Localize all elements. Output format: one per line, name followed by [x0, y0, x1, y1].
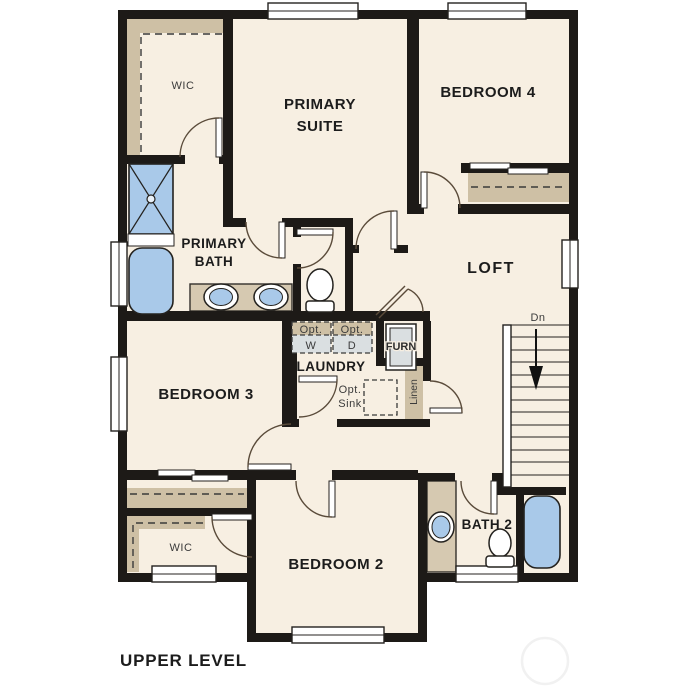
sink-opt-label: Sink [338, 398, 361, 410]
window [111, 357, 127, 431]
washer-opt-label: W [306, 340, 317, 352]
wic-upper-shelf-top [127, 19, 223, 33]
wic-lower-label: WIC [170, 542, 193, 554]
shower-primary [128, 164, 174, 246]
stair-stringer [503, 325, 511, 487]
bedroom4-closet-door [508, 168, 548, 174]
bedroom3-closet-door [158, 470, 195, 476]
primary-suite-label: SUITE [297, 118, 344, 135]
window [448, 3, 526, 19]
floor-plan-page: WIC PRIMARY SUITE BEDROOM 4 PRIMARY BATH… [0, 0, 687, 687]
primary-bath-label: PRIMARY [181, 236, 246, 251]
shower-drain-icon [147, 195, 155, 203]
watermark-circle [522, 638, 568, 684]
laundry-label: LAUNDRY [297, 359, 366, 374]
dryer-opt-label: D [348, 340, 356, 352]
toilet-primary [306, 269, 334, 312]
window [456, 566, 518, 582]
bedroom4-label: BEDROOM 4 [440, 84, 536, 101]
washer-opt-label: Opt. [300, 324, 323, 336]
floor-plan-canvas: WIC PRIMARY SUITE BEDROOM 4 PRIMARY BATH… [0, 0, 687, 687]
shower-curb [128, 234, 174, 246]
wic-upper-shelf-left [127, 19, 140, 155]
vanity-sink-bath2 [428, 512, 454, 542]
primary-suite-label: PRIMARY [284, 96, 356, 113]
furnace-label: FURN [386, 341, 417, 353]
bathtub-bath2 [524, 496, 560, 568]
bedroom3-closet-door [192, 475, 228, 481]
bath2-label: BATH 2 [462, 517, 513, 532]
primary-bath-label: BATH [195, 254, 234, 269]
loft-label: LOFT [467, 260, 515, 277]
window [562, 240, 578, 288]
dryer-opt-label: Opt. [341, 324, 364, 336]
page-title: UPPER LEVEL [120, 651, 247, 670]
sink-opt-label: Opt. [339, 384, 362, 396]
bedroom2-label: BEDROOM 2 [288, 556, 383, 573]
bathtub-primary [129, 248, 173, 314]
bedroom3-label: BEDROOM 3 [158, 386, 253, 403]
linen-label: Linen [408, 379, 420, 405]
window [292, 627, 384, 643]
window [152, 566, 216, 582]
stairs-down-label: Dn [530, 312, 545, 324]
wic-upper-label: WIC [172, 80, 195, 92]
window [268, 3, 358, 19]
window [111, 242, 127, 306]
bedroom3-closet-shelf [127, 488, 247, 508]
bedroom4-closet-door [470, 163, 510, 169]
